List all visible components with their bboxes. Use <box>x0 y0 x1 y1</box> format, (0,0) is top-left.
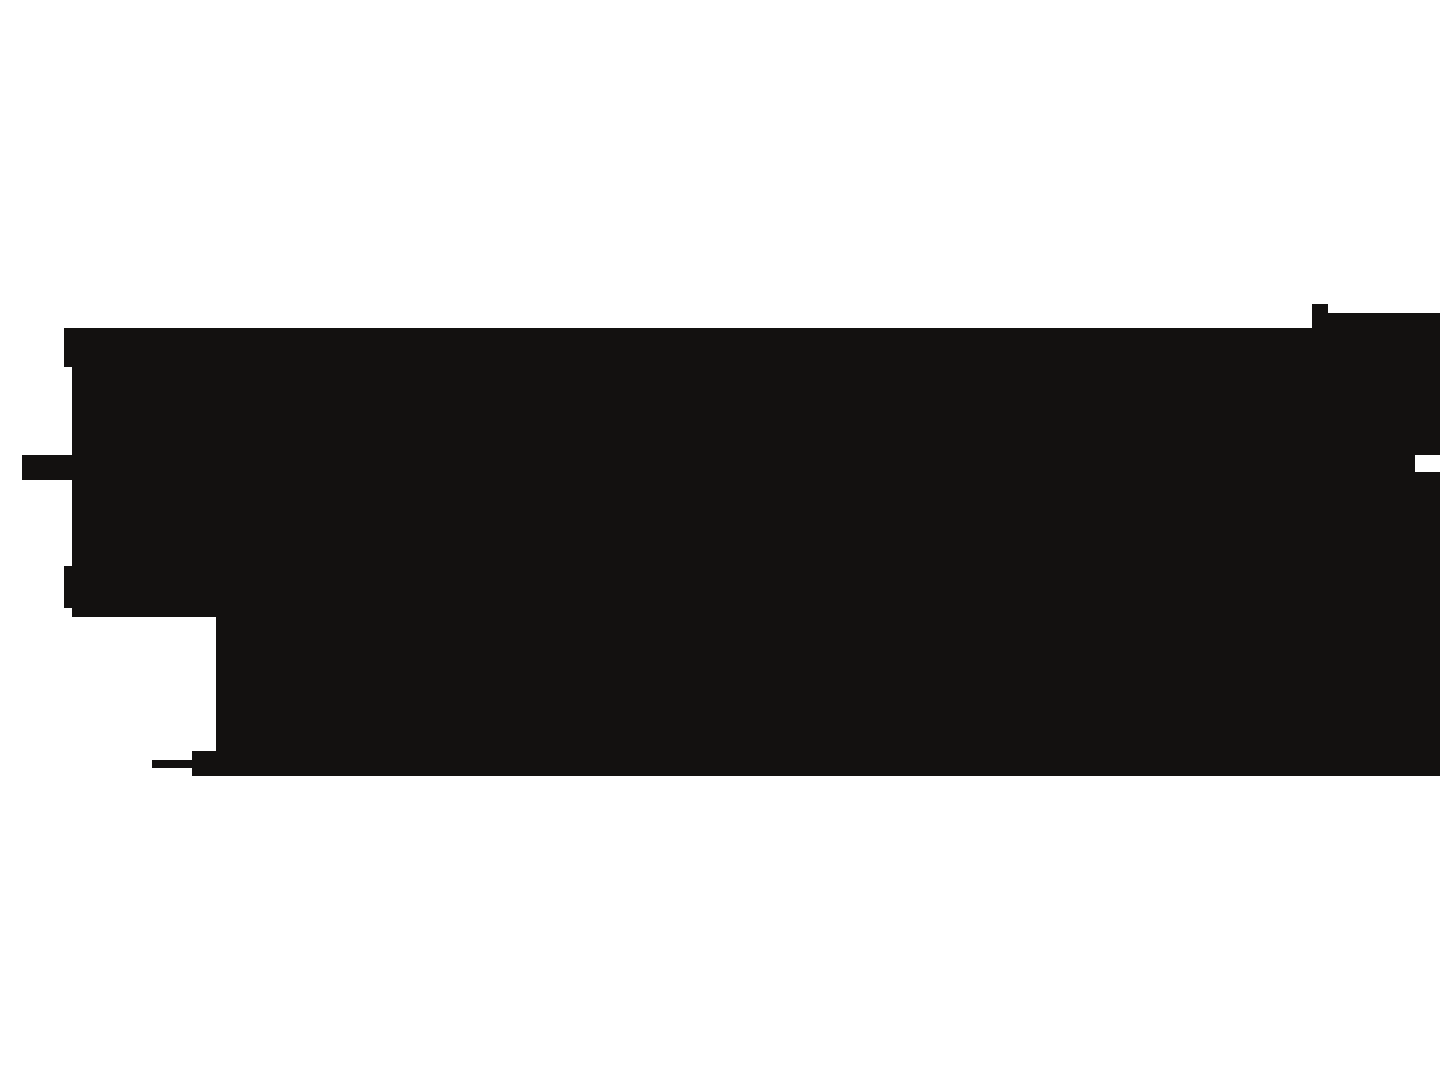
silhouette-polygon <box>22 304 1440 776</box>
page-background <box>0 0 1440 1080</box>
silhouette-graphic <box>0 0 1440 1080</box>
